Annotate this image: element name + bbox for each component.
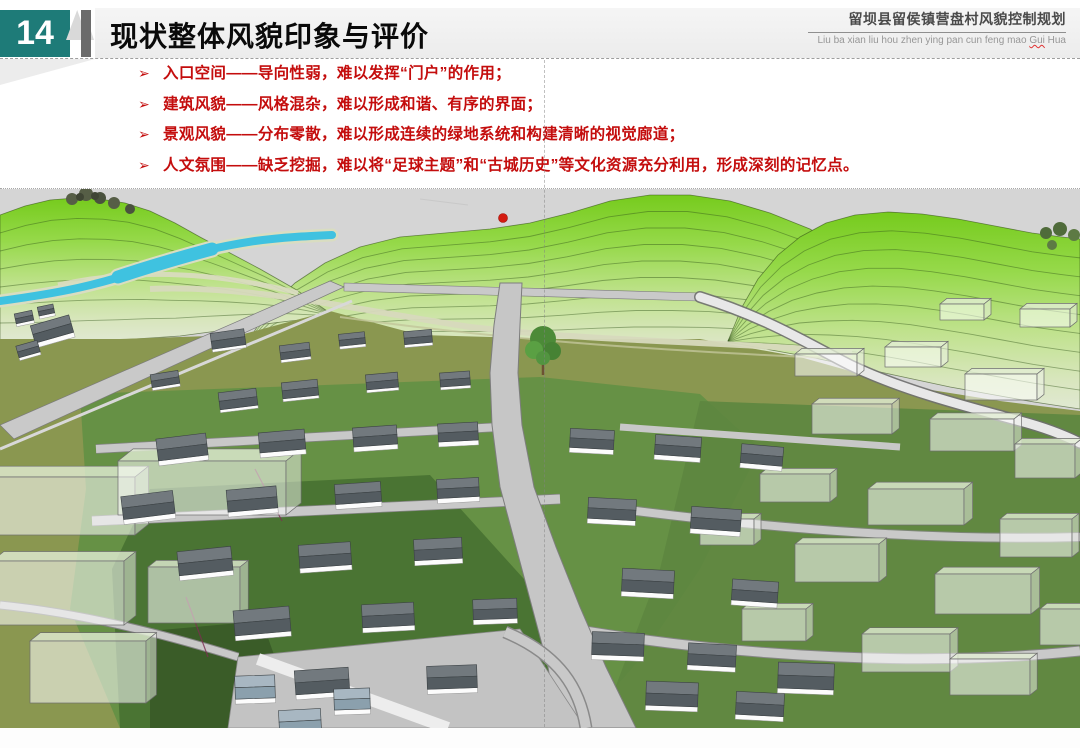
house: [281, 379, 319, 402]
red-location-marker: [499, 214, 508, 223]
ghost-building: [1020, 303, 1077, 327]
page-number: 14: [16, 14, 54, 53]
page-number-box: 14: [0, 10, 70, 57]
bullet-item: ➢ 入口空间——导向性弱，难以发挥“门户”的作用；: [138, 63, 1068, 94]
house: [731, 579, 779, 608]
house: [177, 546, 234, 580]
house: [403, 329, 432, 347]
house: [440, 371, 471, 390]
house: [338, 332, 365, 350]
house: [687, 643, 736, 672]
arrow-bullet-icon: ➢: [138, 63, 150, 84]
header-accent-bar: [81, 10, 91, 57]
house: [334, 481, 382, 509]
house: [413, 537, 462, 565]
ghost-building: [935, 567, 1040, 614]
house: [438, 422, 479, 447]
ghost-building: [930, 413, 1022, 451]
project-title: 留坝县留侯镇营盘村风貌控制规划: [808, 9, 1066, 29]
house: [427, 665, 478, 695]
house: [233, 606, 291, 641]
header-separator: [0, 58, 1080, 59]
ghost-building: [1015, 438, 1080, 478]
house: [156, 433, 209, 466]
arrow-bullet-icon: ➢: [138, 124, 150, 145]
ghost-building: [812, 398, 899, 434]
house: [569, 428, 614, 454]
ghost-building: [742, 603, 813, 641]
house: [365, 372, 398, 393]
ghost-building: [868, 482, 973, 525]
ghost-building: [965, 368, 1044, 400]
house: [121, 490, 176, 524]
house: [591, 632, 644, 662]
house: [654, 434, 702, 462]
house: [777, 662, 834, 695]
bullet-item: ➢ 建筑风貌——风格混杂，难以形成和谐、有序的界面；: [138, 94, 1068, 125]
ghost-building: [885, 341, 948, 367]
house: [621, 568, 674, 599]
house: [279, 342, 311, 363]
village-3d-rendering: [0, 188, 1080, 729]
house: [735, 691, 784, 721]
house: [352, 425, 398, 452]
ghost-building: [940, 298, 991, 320]
ghost-building: [950, 653, 1037, 695]
ghost-building: [1040, 603, 1080, 645]
ghost-building: [30, 633, 156, 703]
ghost-building: [1000, 513, 1079, 557]
house: [645, 681, 698, 712]
house: [740, 444, 784, 472]
project-title-divider: [808, 32, 1066, 33]
arrow-bullet-icon: ➢: [138, 94, 150, 115]
pinyin-spellcheck-mark: Gui: [1029, 35, 1045, 46]
slide: 14 现状整体风貌印象与评价 留坝县留侯镇营盘村风貌控制规划 Liu ba xi…: [0, 0, 1080, 748]
house: [226, 486, 278, 517]
page-title: 现状整体风貌印象与评价: [110, 15, 429, 55]
project-pinyin: Liu ba xian liu hou zhen ying pan cun fe…: [808, 35, 1066, 46]
bullet-item: ➢ 人文氛围——缺乏挖掘，难以将“足球主题”和“古城历史”等文化资源充分利用，形…: [138, 155, 1068, 186]
ghost-building: [795, 348, 864, 376]
corner-shade: [0, 59, 95, 85]
house: [473, 598, 518, 625]
footer-margin: [0, 728, 1080, 748]
house: [437, 477, 480, 503]
house: [334, 688, 371, 715]
ghost-building: [795, 538, 887, 582]
arrow-bullet-icon: ➢: [138, 155, 150, 176]
house: [218, 388, 258, 412]
house: [587, 497, 636, 525]
house: [278, 708, 321, 728]
ghost-building: [0, 551, 136, 625]
house: [298, 542, 352, 574]
bullet-item: ➢ 景观风貌——分布零散，难以形成连续的绿地系统和构建清晰的视觉廊道；: [138, 124, 1068, 155]
house: [235, 675, 276, 704]
house: [361, 602, 414, 633]
ghost-building: [760, 468, 837, 502]
house: [690, 506, 742, 536]
bullet-list: ➢ 入口空间——导向性弱，难以发挥“门户”的作用； ➢ 建筑风貌——风格混杂，难…: [138, 63, 1068, 185]
project-title-block: 留坝县留侯镇营盘村风貌控制规划 Liu ba xian liu hou zhen…: [808, 9, 1066, 46]
ghost-building: [862, 628, 958, 672]
house: [258, 429, 306, 458]
